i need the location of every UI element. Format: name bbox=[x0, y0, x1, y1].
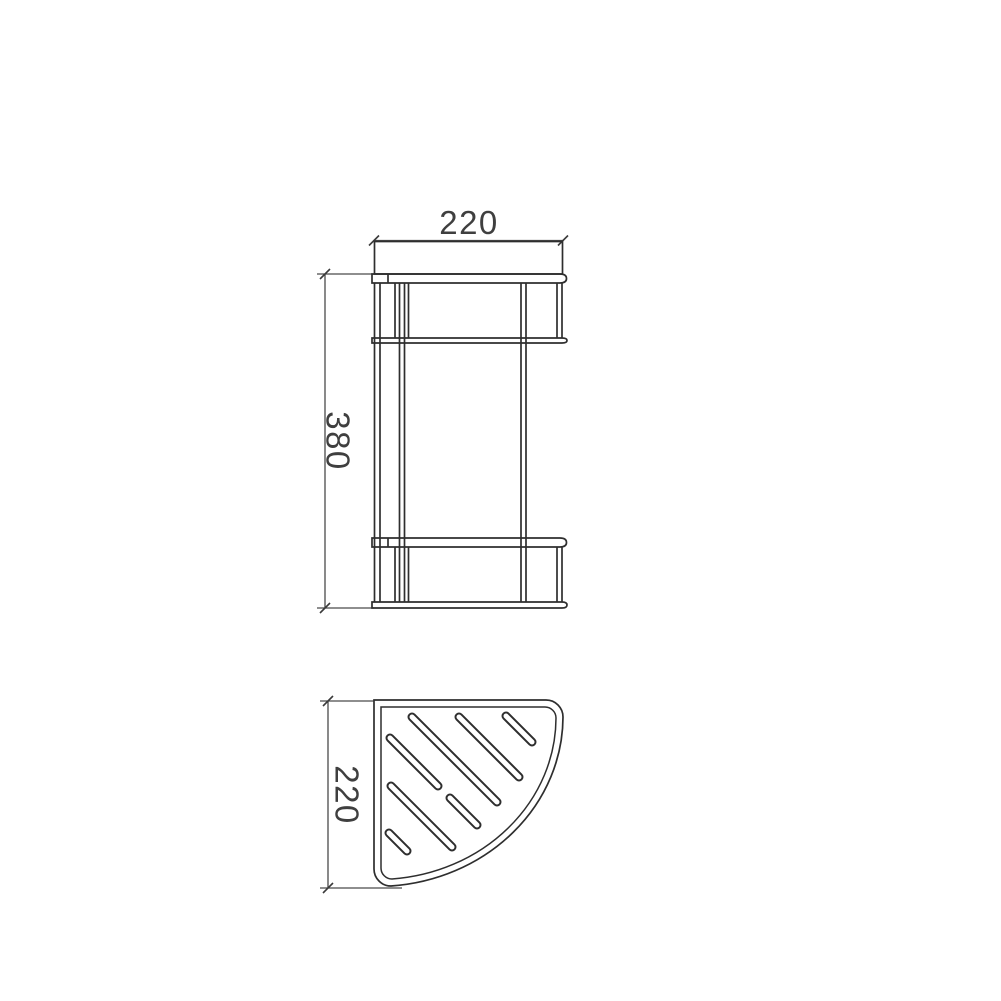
upper-shelf-plate bbox=[372, 274, 567, 283]
drain-slot-inner bbox=[390, 738, 438, 786]
front-width-dimension: 220 bbox=[369, 204, 568, 246]
drain-slots bbox=[389, 716, 532, 851]
upper-basket bbox=[372, 283, 567, 343]
front-height-dimension-label: 380 bbox=[320, 411, 357, 471]
drain-slot-inner bbox=[506, 716, 532, 742]
drain-slot-inner bbox=[450, 798, 477, 825]
lower-basket-bottom-rail bbox=[372, 602, 567, 608]
front-view: 220 380 bbox=[317, 204, 568, 613]
plan-depth-dimension: 220 bbox=[320, 696, 402, 893]
lower-basket bbox=[372, 547, 567, 608]
technical-drawing-canvas: 220 380 bbox=[0, 0, 1001, 1001]
upper-basket-bottom-rail bbox=[372, 338, 567, 343]
plan-view: 220 bbox=[320, 696, 563, 893]
support-rods bbox=[375, 283, 527, 602]
top-rail bbox=[375, 242, 563, 275]
front-height-dimension: 380 bbox=[317, 269, 374, 613]
front-width-dimension-label: 220 bbox=[439, 204, 499, 241]
drain-slot-inner bbox=[412, 717, 497, 802]
plan-depth-dimension-label: 220 bbox=[329, 765, 366, 825]
lower-shelf-plate bbox=[372, 538, 567, 547]
